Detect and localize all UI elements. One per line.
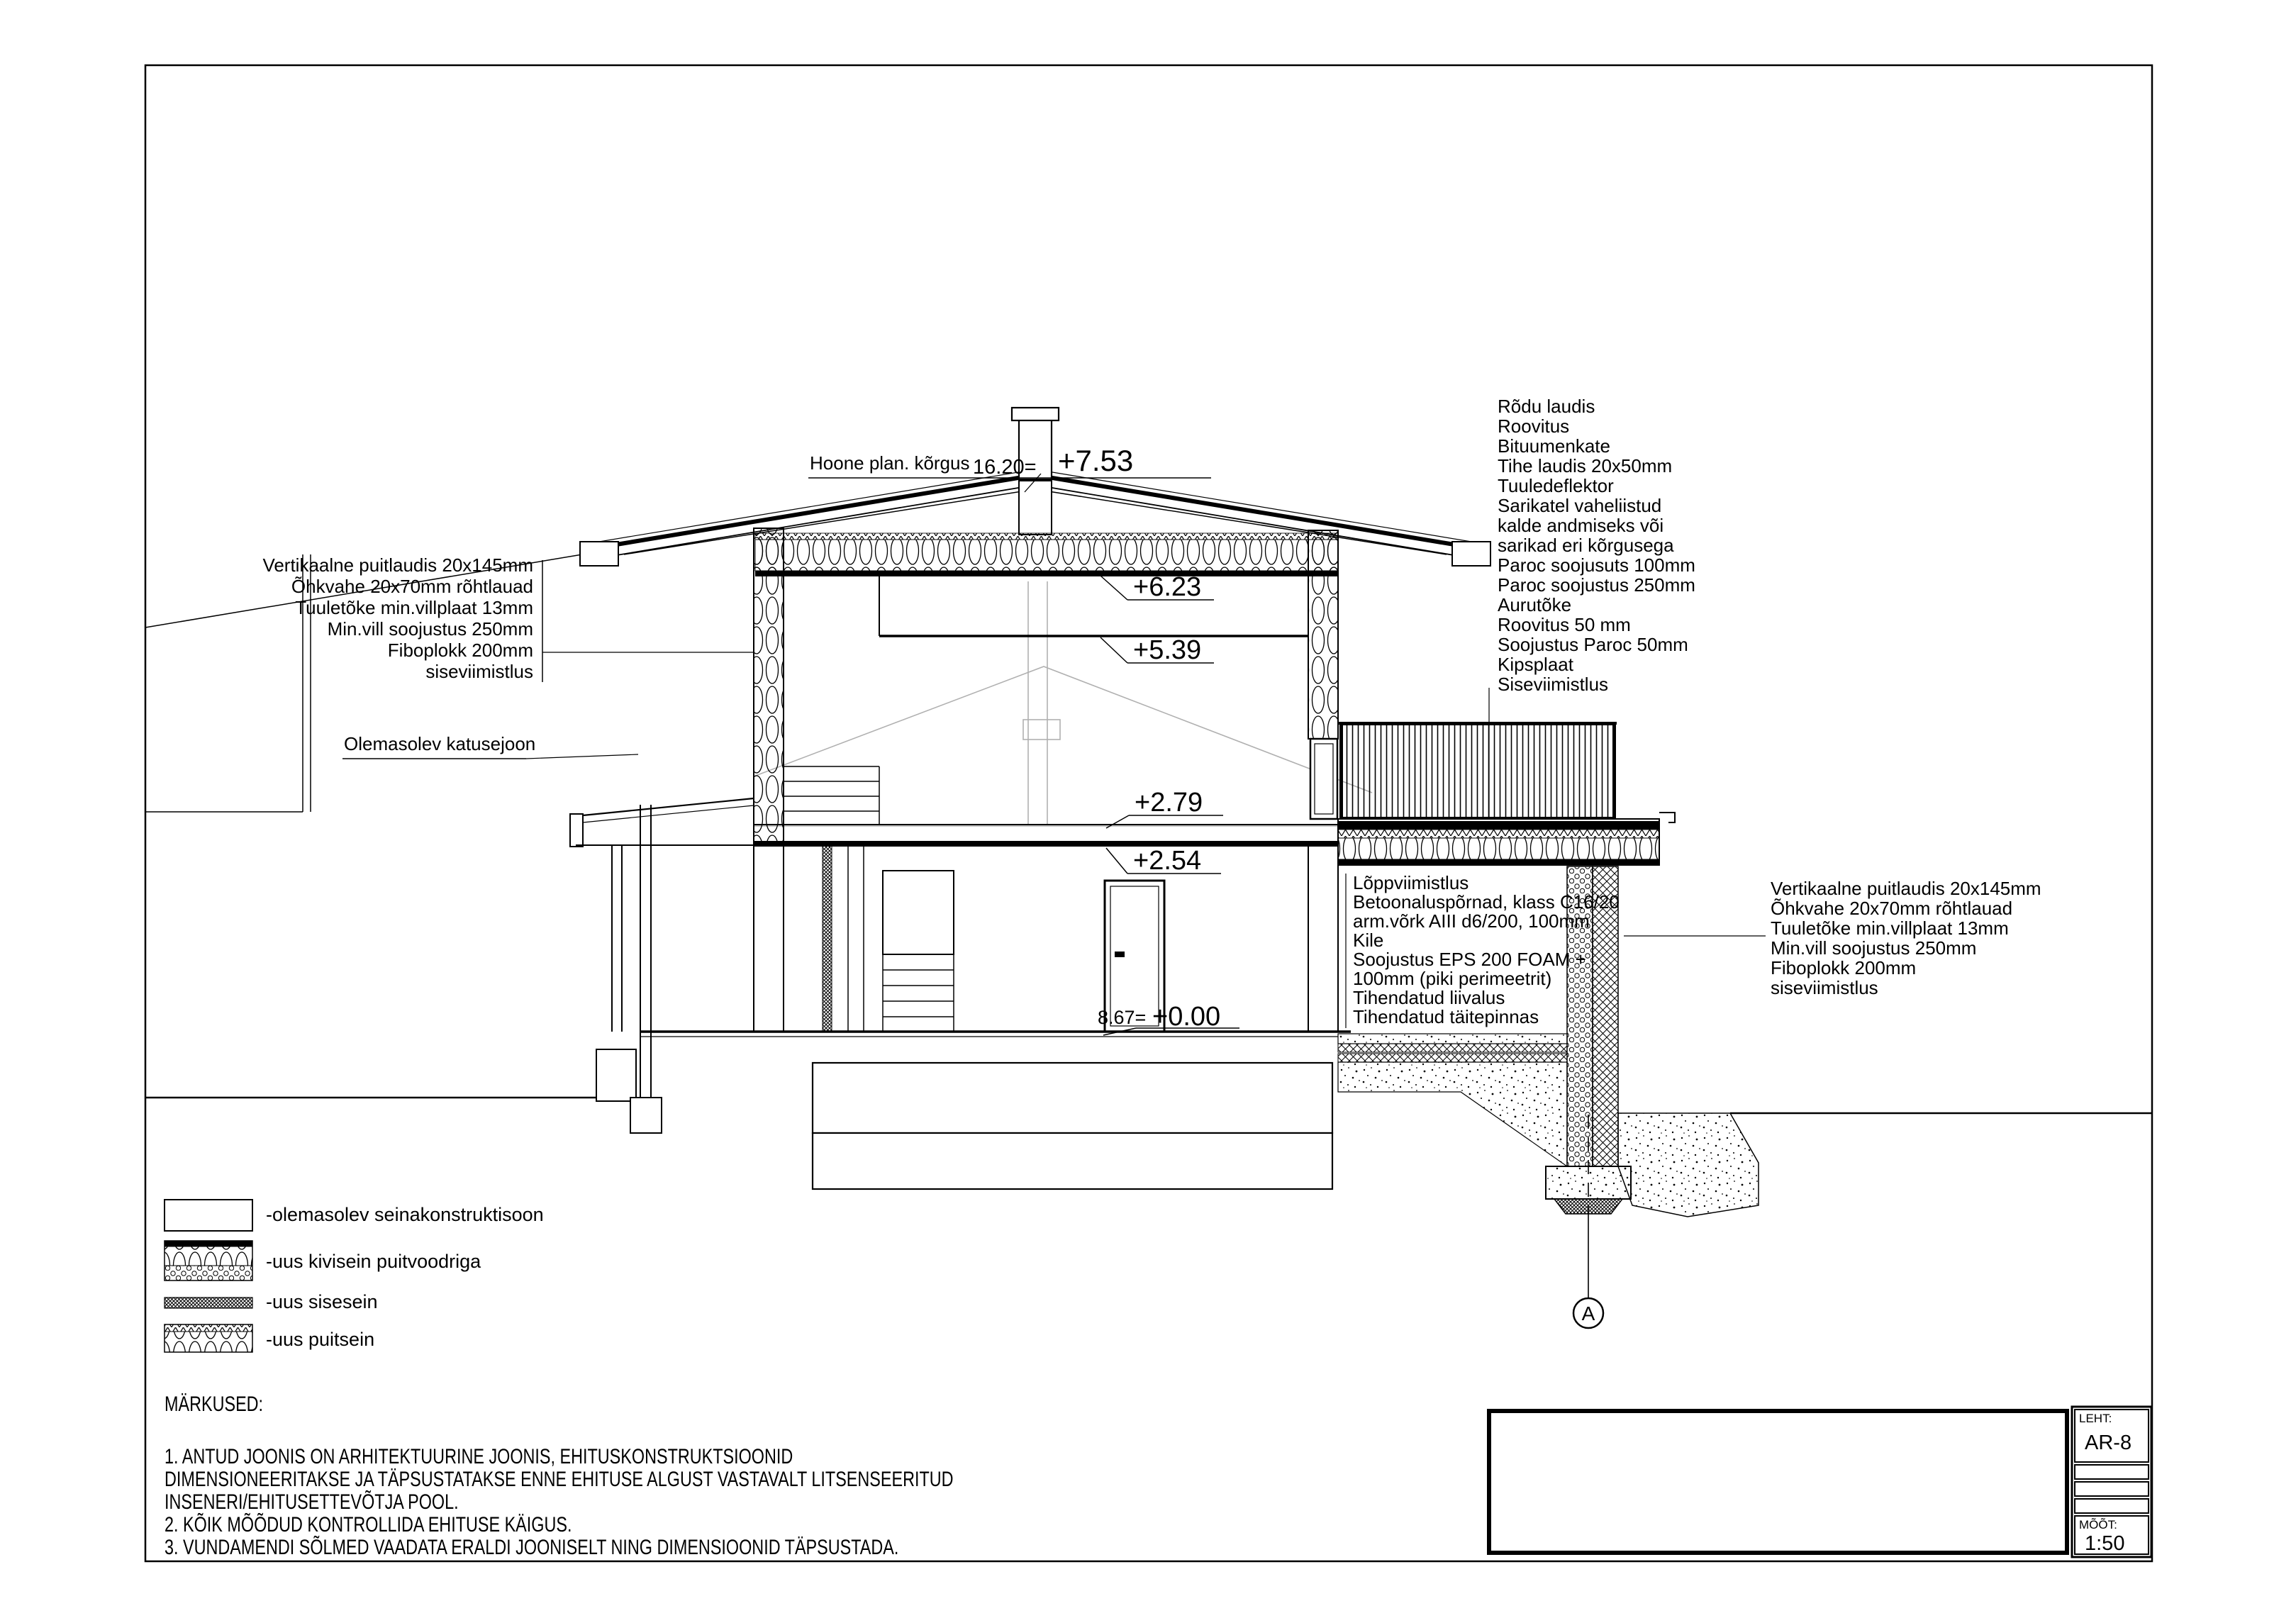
- svg-text:Tuuletõke min.villplaat 13mm: Tuuletõke min.villplaat 13mm: [295, 597, 533, 618]
- svg-text:Tuuletõke min.villplaat 13mm: Tuuletõke min.villplaat 13mm: [1771, 917, 2009, 939]
- svg-text:Vertikaalne puitlaudis 20x145m: Vertikaalne puitlaudis 20x145mm: [1771, 878, 2041, 899]
- svg-text:+2.54: +2.54: [1133, 846, 1201, 876]
- svg-text:Õhkvahe 20x70mm rõhtlauad: Õhkvahe 20x70mm rõhtlauad: [1771, 898, 2012, 919]
- svg-text:Tihendatud täitepinnas: Tihendatud täitepinnas: [1353, 1006, 1539, 1027]
- svg-text:Siseviimistlus: Siseviimistlus: [1498, 674, 1608, 695]
- notes-heading: MÄRKUSED:: [165, 1392, 263, 1415]
- svg-text:3. VUNDAMENDI SÕLMED VAADATA E: 3. VUNDAMENDI SÕLMED VAADATA ERALDI JOON…: [165, 1534, 898, 1559]
- title-block-main-box: [1489, 1411, 2067, 1553]
- title-block-empty-cell: [2075, 1482, 2149, 1496]
- svg-text:arm.võrk AIII d6/200, 100mm: arm.võrk AIII d6/200, 100mm: [1353, 910, 1590, 932]
- title-block: LEHT: AR-8 MÕÕT: 1:50: [1489, 1407, 2151, 1557]
- svg-text:Soojustus EPS 200 FOAM +: Soojustus EPS 200 FOAM +: [1353, 949, 1586, 970]
- svg-text:+0.00: +0.00: [1152, 1002, 1220, 1032]
- svg-text:-uus puitsein: -uus puitsein: [266, 1329, 374, 1350]
- title-block-empty-cell: [2075, 1499, 2149, 1513]
- section-mark-letter: A: [1582, 1302, 1595, 1324]
- svg-text:Fiboplokk 200mm: Fiboplokk 200mm: [1771, 957, 1916, 978]
- wall-right-2f: [1308, 530, 1338, 739]
- svg-text:Tihendatud liivalus: Tihendatud liivalus: [1353, 987, 1505, 1008]
- svg-text:Bituumenkate: Bituumenkate: [1498, 435, 1610, 457]
- interior-wall-new: [823, 845, 832, 1032]
- building-height-label: Hoone plan. kõrgus: [810, 452, 969, 474]
- wall-left-2f: [754, 528, 784, 846]
- sheet-number: AR-8: [2085, 1432, 2131, 1454]
- legend-item-new-timber-wall: -uus puitsein: [165, 1324, 374, 1352]
- svg-text:Lõppviimistlus: Lõppviimistlus: [1353, 872, 1469, 893]
- title-block-empty-cell: [2075, 1465, 2149, 1479]
- svg-text:+5.39: +5.39: [1133, 635, 1201, 665]
- svg-text:1. ANTUD JOONIS ON ARHITEKTUUR: 1. ANTUD JOONIS ON ARHITEKTUURINE JOONIS…: [165, 1444, 793, 1468]
- svg-text:Olemasolev katusejoon: Olemasolev katusejoon: [344, 733, 535, 754]
- svg-text:Soojustus Paroc 50mm: Soojustus Paroc 50mm: [1498, 634, 1688, 655]
- svg-text:Tuuledeflektor: Tuuledeflektor: [1498, 475, 1614, 496]
- svg-text:Kipsplaat: Kipsplaat: [1498, 654, 1574, 675]
- sheet-label: LEHT:: [2079, 1412, 2112, 1425]
- svg-text:Min.vill soojustus 250mm: Min.vill soojustus 250mm: [1771, 937, 1976, 959]
- svg-text:-olemasolev seinakonstruktisoo: -olemasolev seinakonstruktisoon: [266, 1204, 544, 1225]
- ground-slope-wedge: [1618, 1113, 1759, 1217]
- svg-text:siseviimistlus: siseviimistlus: [425, 661, 533, 682]
- svg-text:DIMENSIONEERITAKSE JA TÄPSUSTA: DIMENSIONEERITAKSE JA TÄPSUSTATAKSE ENNE…: [165, 1467, 954, 1490]
- svg-text:Betoonaluspõrnad, klass C16/20: Betoonaluspõrnad, klass C16/20: [1353, 891, 1620, 913]
- architectural-section-sheet: A Hoone plan. kõrgus 16.20= +7.53 +6.23 …: [0, 0, 2296, 1618]
- legend-swatch-new-interior-wall: [165, 1298, 252, 1308]
- svg-text:+6.23: +6.23: [1133, 572, 1201, 602]
- svg-text:Roovitus: Roovitus: [1498, 415, 1569, 437]
- scale-value: 1:50: [2085, 1532, 2124, 1555]
- svg-text:Õhkvahe 20x70mm rõhtlauad: Õhkvahe 20x70mm rõhtlauad: [291, 576, 533, 597]
- svg-text:Roovitus 50 mm: Roovitus 50 mm: [1498, 614, 1631, 635]
- svg-text:Sarikatel vaheliistud: Sarikatel vaheliistud: [1498, 495, 1661, 516]
- svg-text:-uus kivisein puitvoodriga: -uus kivisein puitvoodriga: [266, 1251, 481, 1272]
- svg-text:INSENERI/EHITUSETTEVÕTJA POOL.: INSENERI/EHITUSETTEVÕTJA POOL.: [165, 1489, 459, 1514]
- svg-text:sarikad eri kõrgusega: sarikad eri kõrgusega: [1498, 535, 1674, 556]
- svg-text:Paroc soojustus 250mm: Paroc soojustus 250mm: [1498, 574, 1695, 596]
- balcony-door: [1310, 739, 1337, 819]
- svg-text:-uus sisesein: -uus sisesein: [266, 1291, 378, 1312]
- door-handle: [1115, 952, 1125, 957]
- ridge-abs-height: 16.20=: [973, 456, 1037, 479]
- svg-text:Fiboplokk 200mm: Fiboplokk 200mm: [388, 640, 533, 661]
- scale-label: MÕÕT:: [2079, 1518, 2117, 1531]
- svg-text:siseviimistlus: siseviimistlus: [1771, 977, 1878, 998]
- balcony-railing: [1340, 725, 1615, 818]
- svg-text:Vertikaalne puitlaudis 20x145m: Vertikaalne puitlaudis 20x145mm: [262, 554, 533, 576]
- eave-fascia-left: [580, 542, 618, 566]
- svg-text:Tihe laudis 20x50mm: Tihe laudis 20x50mm: [1498, 455, 1672, 476]
- eave-fascia-right: [1452, 542, 1490, 566]
- svg-text:Kile: Kile: [1353, 930, 1383, 951]
- svg-text:8.67=: 8.67=: [1098, 1007, 1146, 1028]
- svg-text:Paroc soojusuts 100mm: Paroc soojusuts 100mm: [1498, 554, 1695, 576]
- svg-text:Aurutõke: Aurutõke: [1498, 594, 1571, 615]
- ridge-level-value: +7.53: [1058, 444, 1133, 477]
- svg-text:kalde andmiseks või: kalde andmiseks või: [1498, 515, 1664, 536]
- legend-swatch-existing-wall: [165, 1200, 252, 1231]
- svg-text:2. KÕIK MÕÕDUD KONTROLLIDA EHI: 2. KÕIK MÕÕDUD KONTROLLIDA EHITUSE KÄIGU…: [165, 1512, 572, 1536]
- svg-text:+2.79: +2.79: [1135, 788, 1203, 818]
- svg-text:100mm (piki perimeetrit): 100mm (piki perimeetrit): [1353, 968, 1551, 989]
- svg-text:Min.vill soojustus 250mm: Min.vill soojustus 250mm: [328, 618, 533, 640]
- section-drawing: A Hoone plan. kõrgus 16.20= +7.53 +6.23 …: [0, 0, 2296, 1618]
- balcony-slab: [1338, 819, 1659, 865]
- ceiling-insulation-band: [755, 533, 1338, 576]
- svg-text:Rõdu laudis: Rõdu laudis: [1498, 396, 1595, 417]
